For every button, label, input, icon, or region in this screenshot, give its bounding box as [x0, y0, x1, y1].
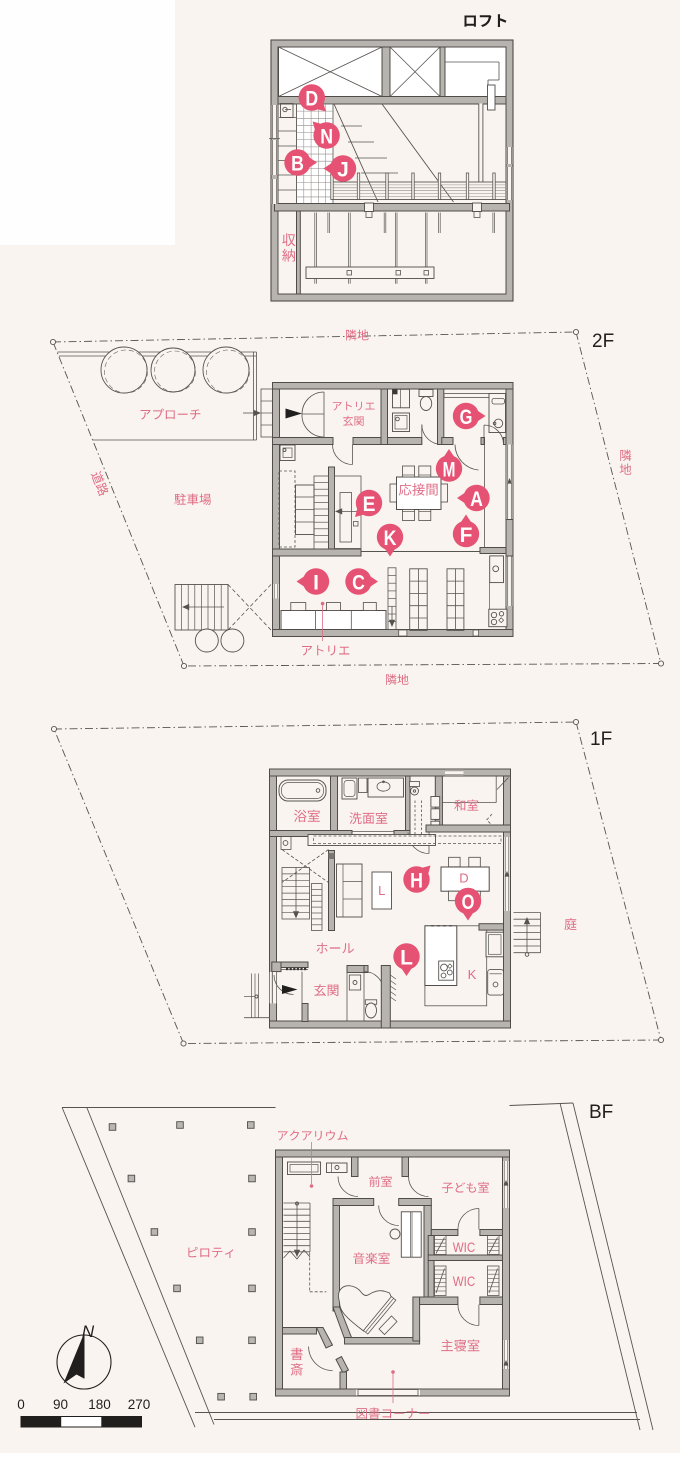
svg-text:180: 180	[88, 1397, 111, 1412]
svg-text:L: L	[400, 946, 413, 969]
svg-text:N: N	[82, 1322, 95, 1341]
svg-text:2F: 2F	[592, 331, 614, 352]
svg-text:I: I	[313, 571, 319, 594]
svg-text:D: D	[305, 87, 318, 110]
svg-text:K: K	[384, 527, 397, 550]
svg-text:0: 0	[17, 1397, 25, 1412]
svg-text:1F: 1F	[590, 729, 612, 750]
svg-text:O: O	[462, 891, 475, 914]
svg-text:WIC: WIC	[453, 1239, 476, 1255]
svg-text:H: H	[410, 869, 423, 892]
svg-text:B: B	[291, 152, 304, 175]
svg-text:G: G	[460, 406, 473, 429]
svg-text:F: F	[460, 524, 473, 547]
svg-text:C: C	[352, 571, 365, 594]
svg-text:J: J	[337, 158, 349, 181]
svg-text:K: K	[468, 967, 477, 982]
svg-text:90: 90	[53, 1397, 68, 1412]
svg-text:N: N	[320, 125, 333, 148]
svg-text:D: D	[459, 871, 468, 886]
svg-text:BF: BF	[589, 1102, 613, 1123]
svg-text:E: E	[363, 493, 376, 516]
svg-text:270: 270	[128, 1397, 151, 1412]
svg-text:L: L	[378, 883, 385, 898]
svg-text:M: M	[443, 458, 456, 481]
svg-text:A: A	[470, 488, 483, 511]
svg-text:WIC: WIC	[453, 1273, 476, 1289]
